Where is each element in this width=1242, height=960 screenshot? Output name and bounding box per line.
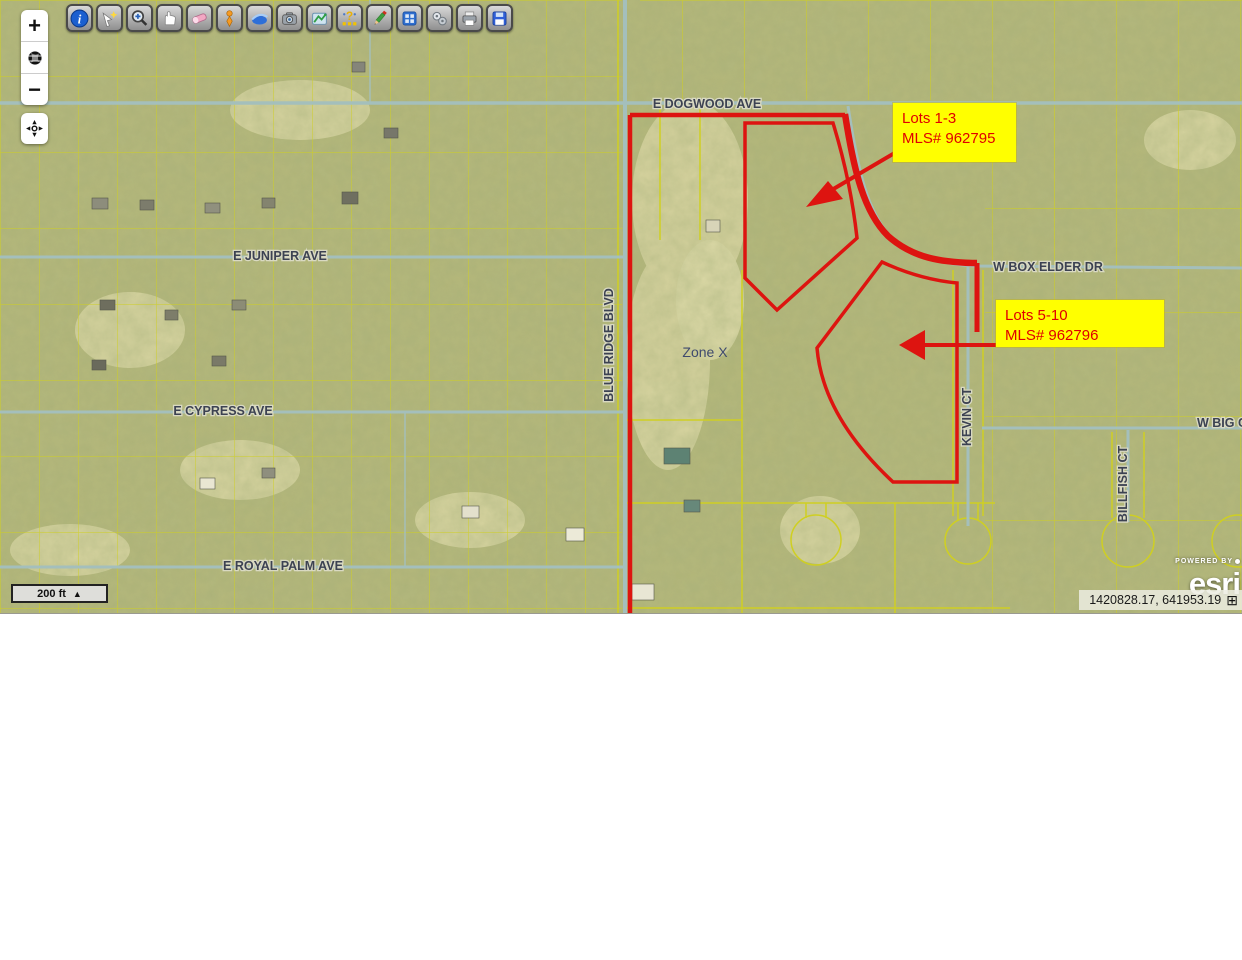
address-question-icon[interactable]: ? <box>336 4 363 32</box>
label-kevin: KEVIN CT <box>960 387 974 446</box>
print-icon[interactable] <box>456 4 483 32</box>
label-billfish: BILLFISH CT <box>1116 445 1130 522</box>
select-flash-icon[interactable] <box>96 4 123 32</box>
coordinate-tool-icon[interactable]: ⊞ <box>1226 593 1238 607</box>
callout-lots-1-3: Lots 1-3 MLS# 962795 <box>893 103 1016 162</box>
label-juniper: E JUNIPER AVE <box>233 249 327 263</box>
scalebar[interactable]: 200 ft ▲ <box>11 584 108 603</box>
camera-icon[interactable] <box>276 4 303 32</box>
coordinates-bar: 1420828.17, 641953.19 ⊞ <box>1079 590 1242 610</box>
scalebar-label: 200 ft <box>37 588 66 600</box>
zoom-in-button[interactable]: + <box>21 10 48 41</box>
label-big: W BIG C <box>1197 416 1242 430</box>
scalebar-arrow-icon: ▲ <box>73 589 82 599</box>
globe-extent-button[interactable] <box>21 41 48 73</box>
label-dogwood: E DOGWOOD AVE <box>653 97 761 111</box>
save-icon[interactable] <box>486 4 513 32</box>
powered-by-label: POWERED BY <box>1175 558 1233 565</box>
draw-pencil-icon[interactable] <box>366 4 393 32</box>
callout-2-line1: Lots 5-10 <box>1005 306 1155 326</box>
zoom-out-button[interactable]: − <box>21 73 48 105</box>
marker-pin-icon[interactable] <box>216 4 243 32</box>
eraser-icon[interactable] <box>186 4 213 32</box>
pan-hand-icon[interactable] <box>156 4 183 32</box>
zoom-in-tool-icon[interactable] <box>126 4 153 32</box>
info-icon[interactable]: i <box>66 4 93 32</box>
extent-grid-icon[interactable] <box>396 4 423 32</box>
gears-icon[interactable] <box>426 4 453 32</box>
map-viewport[interactable]: E DOGWOOD AVE E JUNIPER AVE E CYPRESS AV… <box>0 0 1242 614</box>
pan-navigate-button[interactable] <box>21 113 48 144</box>
svg-text:i: i <box>78 12 82 26</box>
toolbar: i ? <box>66 4 513 32</box>
zone-x-label: Zone X <box>682 344 728 360</box>
esri-dot-icon <box>1235 559 1240 564</box>
callout-2-line2: MLS# 962796 <box>1005 326 1155 346</box>
measure-map-icon[interactable] <box>306 4 333 32</box>
callout-1-line1: Lots 1-3 <box>902 109 1007 129</box>
callout-lots-5-10: Lots 5-10 MLS# 962796 <box>996 300 1164 347</box>
label-cypress: E CYPRESS AVE <box>173 404 272 418</box>
swoosh-layer-icon[interactable] <box>246 4 273 32</box>
label-royal-palm: E ROYAL PALM AVE <box>223 559 343 573</box>
callout-1-line2: MLS# 962795 <box>902 129 1007 149</box>
svg-text:?: ? <box>346 10 353 23</box>
zoom-panel: + − <box>21 10 48 105</box>
label-box-elder: W BOX ELDER DR <box>993 260 1103 274</box>
label-blue-ridge: BLUE RIDGE BLVD <box>602 288 616 402</box>
crosshair-icon <box>25 119 44 138</box>
globe-icon <box>26 49 44 67</box>
coordinates-value: 1420828.17, 641953.19 <box>1089 593 1221 607</box>
